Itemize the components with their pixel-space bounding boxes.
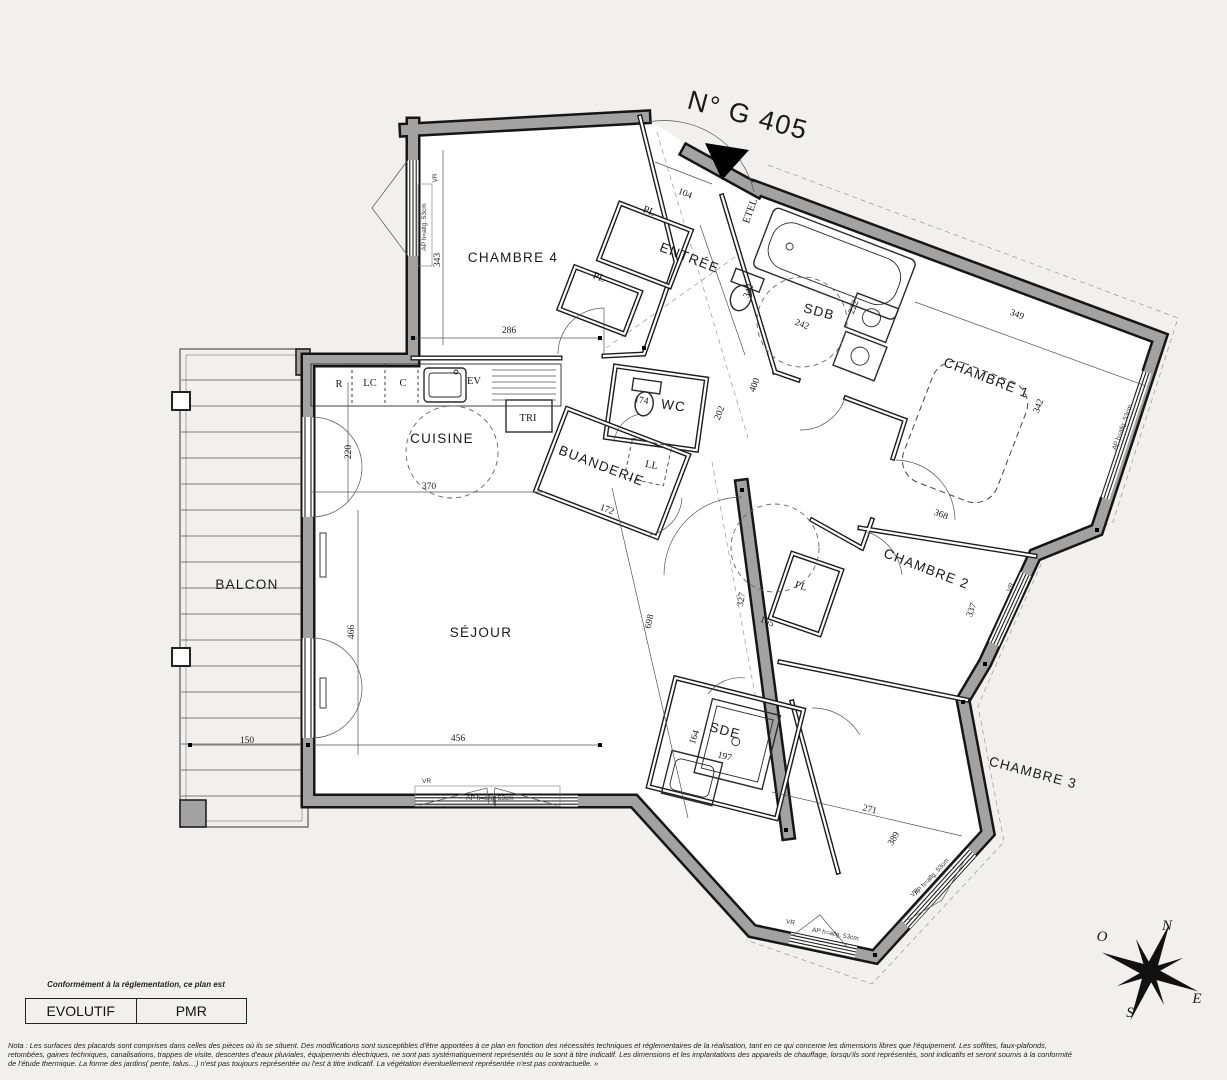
compass-north-label: N [1161, 918, 1173, 934]
dim-150: 150 [240, 736, 255, 746]
window-label-ap-sejour: AP h=allg. 53cm [466, 795, 513, 802]
nota-disclaimer: Nota : Les surfaces des placards sont co… [8, 1041, 1220, 1069]
dim-466: 466 [347, 625, 357, 640]
room-label-cuisine: CUISINE [410, 431, 474, 446]
dim-220: 220 [344, 445, 354, 460]
floor-plan-drawing: N° G 405 CHAMBRE 4 ENTRÉE SDB CHAMBRE 1 … [0, 0, 1227, 1080]
window-label-vr-sejour: VR [422, 778, 431, 785]
window-label-vr-chambre4: VR [432, 173, 439, 182]
compass-west-label: O [1097, 929, 1108, 945]
fixture-label-refrigerateur: R [335, 379, 342, 390]
room-label-balcon: BALCON [215, 577, 278, 592]
dim-456: 456 [451, 734, 466, 744]
compliance-box-pmr: PMR [136, 999, 247, 1023]
plan-number: N° G 405 [684, 85, 811, 146]
fixture-label-cuisson: C [399, 378, 406, 389]
nota-line-3: de l'étude thermique. La forme des jardi… [8, 1059, 1220, 1068]
nota-line-1: Nota : Les surfaces des placards sont co… [8, 1041, 1220, 1050]
room-label-sejour: SÉJOUR [450, 625, 513, 640]
floor-plan-page: N° G 405 CHAMBRE 4 ENTRÉE SDB CHAMBRE 1 … [0, 0, 1227, 1080]
window-label-ap-chambre4: AP h=allg. 53cm [421, 203, 428, 250]
compass-rose: N O E S [1082, 904, 1217, 1039]
balcony-post [172, 392, 190, 410]
room-label-chambre3: CHAMBRE 3 [988, 754, 1079, 792]
balcony-post [172, 648, 190, 666]
compass-east-label: E [1191, 991, 1201, 1007]
dim-174: 174 [634, 395, 650, 407]
compliance-caption: Conformément à la réglementation, ce pla… [25, 980, 247, 989]
fixture-label-tri: TRI [520, 413, 537, 424]
dim-343: 343 [433, 253, 443, 268]
dim-370: 370 [422, 482, 437, 492]
fixture-label-evier: EV [467, 376, 481, 387]
nota-line-2: retombées, gaines techniques, canalisati… [8, 1050, 1220, 1059]
dim-286: 286 [502, 326, 517, 336]
fixture-label-lc: LC [363, 378, 376, 389]
compliance-table: EVOLUTIF PMR [25, 998, 247, 1024]
room-label-chambre4: CHAMBRE 4 [468, 250, 558, 265]
compass-south-label: S [1126, 1005, 1134, 1021]
compliance-box-evolutif: EVOLUTIF [26, 999, 136, 1023]
